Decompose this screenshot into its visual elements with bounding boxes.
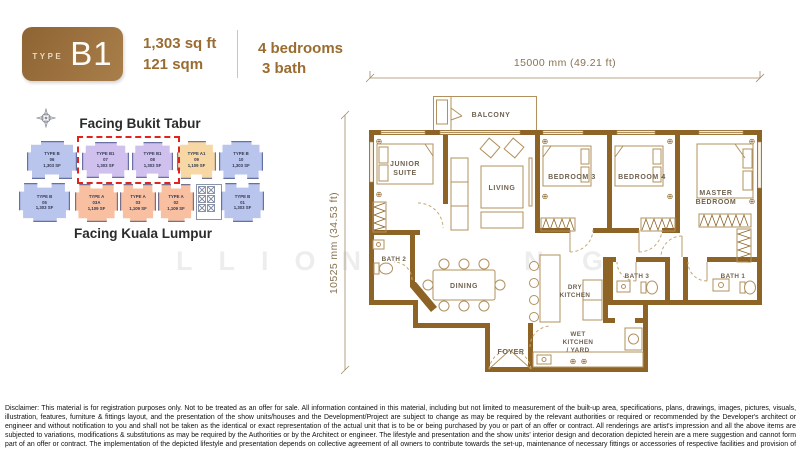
bedroom3-label: BEDROOM 3 bbox=[548, 174, 596, 181]
dining-label: DINING bbox=[450, 283, 478, 290]
svg-text:⊕: ⊕ bbox=[376, 190, 383, 199]
area-sqm: 121 sqm bbox=[143, 54, 216, 75]
wet-kitchen-label: WET bbox=[570, 331, 585, 338]
floor-plan-sheet: TYPE B1 1,303 sq ft 121 sqm 4 bedrooms 3… bbox=[0, 0, 800, 450]
svg-text:⊕: ⊕ bbox=[542, 137, 549, 146]
bath2-label: BATH 2 bbox=[382, 256, 407, 263]
unit-03: TYPE A031,109 SF bbox=[120, 184, 156, 222]
svg-text:/ YARD: / YARD bbox=[566, 347, 589, 354]
disclaimer-text: Disclaimer: This material is for registr… bbox=[5, 404, 796, 450]
compass-icon bbox=[36, 108, 56, 128]
master-bedroom-label: MASTER bbox=[699, 190, 732, 197]
area-stats: 1,303 sq ft 121 sqm bbox=[143, 33, 216, 75]
svg-text:KITCHEN: KITCHEN bbox=[560, 292, 591, 299]
svg-text:⊕: ⊕ bbox=[581, 357, 588, 366]
facing-kuala-lumpur-label: Facing Kuala Lumpur bbox=[58, 226, 228, 241]
svg-text:⊕: ⊕ bbox=[570, 357, 577, 366]
unit-01: TYPE B011,303 SF bbox=[221, 183, 264, 222]
dim-width-label: 15000 mm (49.21 ft) bbox=[514, 57, 616, 69]
unit-03a: TYPE A03A1,109 SF bbox=[75, 184, 118, 222]
highlight-units-07-08 bbox=[77, 136, 180, 184]
svg-text:SUITE: SUITE bbox=[393, 170, 417, 177]
dry-kitchen-label: DRY bbox=[568, 284, 583, 291]
unit-02: TYPE A021,109 SF bbox=[158, 184, 194, 222]
area-sqft: 1,303 sq ft bbox=[143, 33, 216, 54]
bath3-label: BATH 3 bbox=[625, 273, 650, 280]
junior-suite-label: JUNIOR bbox=[390, 161, 420, 168]
bedroom4-label: BEDROOM 4 bbox=[618, 174, 666, 181]
svg-text:⊕: ⊕ bbox=[667, 137, 674, 146]
facing-bukit-tabur-label: Facing Bukit Tabur bbox=[55, 116, 225, 131]
type-badge: TYPE B1 bbox=[22, 27, 123, 81]
header-divider bbox=[237, 30, 238, 78]
unit-05: TYPE B051,303 SF bbox=[19, 183, 70, 222]
unit-06: TYPE B061,303 SF bbox=[27, 141, 77, 179]
type-label: TYPE bbox=[32, 52, 63, 61]
lift-core bbox=[196, 184, 222, 220]
type-value: B1 bbox=[70, 35, 112, 73]
dry-kitchen-counter-icon bbox=[530, 255, 603, 322]
svg-text:BEDROOM: BEDROOM bbox=[696, 199, 737, 206]
balcony: BALCONY bbox=[434, 97, 537, 131]
balcony-label: BALCONY bbox=[472, 112, 511, 119]
floor-plan-svg: 15000 mm (49.21 ft) 10525 mm (34.53 ft) … bbox=[325, 40, 800, 405]
foyer-label: FOYER bbox=[497, 349, 524, 356]
svg-text:KITCHEN: KITCHEN bbox=[563, 339, 594, 346]
svg-text:⊕: ⊕ bbox=[542, 192, 549, 201]
bath1-label: BATH 1 bbox=[721, 273, 746, 280]
unit-09: TYPE A1091,109 SF bbox=[177, 141, 216, 179]
unit-10: TYPE B101,303 SF bbox=[219, 141, 263, 179]
living-label: LIVING bbox=[489, 185, 516, 192]
svg-text:⊕: ⊕ bbox=[667, 192, 674, 201]
dim-height-label: 10525 mm (34.53 ft) bbox=[328, 192, 340, 294]
